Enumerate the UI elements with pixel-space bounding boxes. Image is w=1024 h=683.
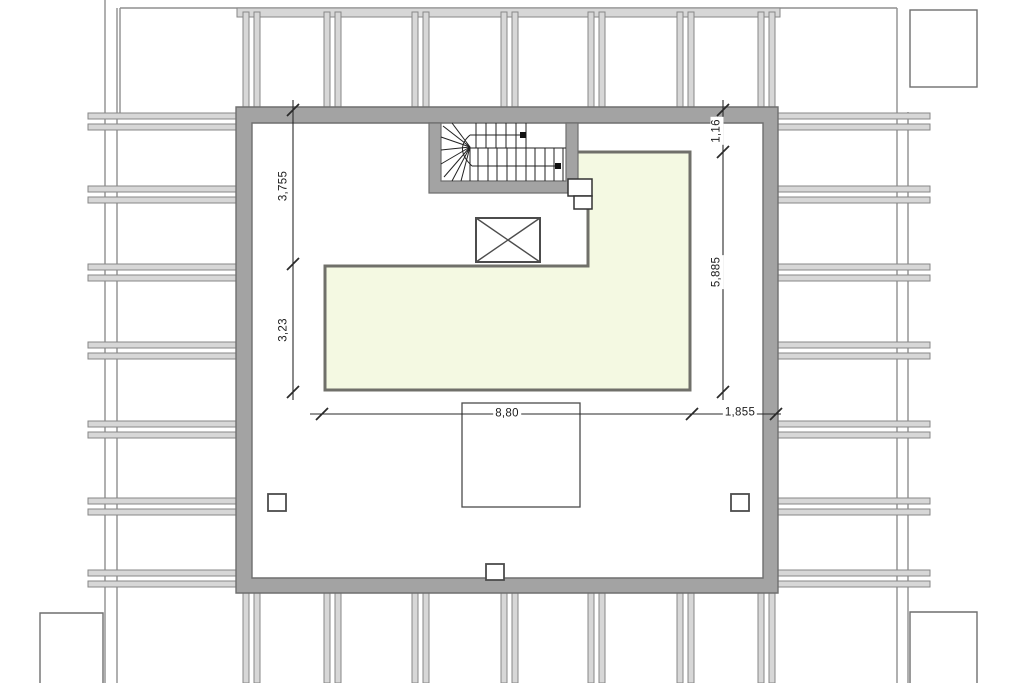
beam-bar — [88, 421, 236, 427]
beam-bar — [778, 124, 930, 130]
column-marker-left — [268, 494, 286, 511]
beam-bar — [243, 593, 249, 683]
beam-bar — [778, 342, 930, 348]
beam-bar — [778, 498, 930, 504]
beam-bar — [501, 12, 507, 107]
beam-bar — [335, 593, 341, 683]
beam-bar — [758, 593, 764, 683]
beam-bar — [599, 593, 605, 683]
beam-bar — [88, 275, 236, 281]
beam-bar — [778, 186, 930, 192]
beam-bar — [778, 275, 930, 281]
stair-walkline-dot-upper — [520, 132, 526, 138]
column-marker-bottom — [486, 564, 504, 580]
beam-bar — [778, 509, 930, 515]
beam-grid-left — [88, 113, 236, 587]
beam-bar — [254, 593, 260, 683]
stair-walkline-dot-lower — [555, 163, 561, 169]
beam-bar — [88, 581, 236, 587]
corner-rect-top-right — [910, 10, 977, 87]
dim-label-right-upper: 1,16 — [711, 117, 724, 145]
floor-plan-drawing — [0, 0, 1024, 683]
beam-bar — [588, 593, 594, 683]
beam-grid-right — [778, 113, 930, 587]
beam-bar — [335, 12, 341, 107]
corner-rect-bottom-left — [40, 613, 103, 683]
beam-bar — [778, 113, 930, 119]
dim-label-left-lower: 3,23 — [278, 316, 291, 344]
beam-bar — [423, 12, 429, 107]
beam-bar — [324, 593, 330, 683]
beam-bar — [88, 498, 236, 504]
beam-bar — [778, 432, 930, 438]
beam-bar — [778, 570, 930, 576]
beam-bar — [677, 12, 683, 107]
beam-bar — [758, 12, 764, 107]
beam-bar — [688, 12, 694, 107]
beam-bar — [324, 12, 330, 107]
dim-label-bottom-right: 1,855 — [723, 407, 757, 420]
dim-label-left-upper: 3,755 — [278, 169, 291, 203]
beam-bar — [412, 12, 418, 107]
corner-rect-bottom-right — [910, 612, 977, 683]
beam-bar — [778, 264, 930, 270]
beam-grid-bottom — [243, 593, 775, 683]
beam-bar — [243, 12, 249, 107]
dim-label-bottom-main: 8,80 — [493, 408, 521, 421]
beam-bar — [88, 509, 236, 515]
beam-bar — [423, 593, 429, 683]
top-edge-beam — [237, 8, 780, 17]
floor-plan-canvas: 3,755 3,23 1,16 5,885 8,80 1,855 — [0, 0, 1024, 683]
beam-bar — [677, 593, 683, 683]
beam-bar — [778, 421, 930, 427]
beam-bar — [88, 353, 236, 359]
beam-grid-top — [243, 12, 775, 107]
beam-bar — [688, 593, 694, 683]
beam-bar — [501, 593, 507, 683]
beam-bar — [88, 197, 236, 203]
beam-bar — [599, 12, 605, 107]
column-marker-right — [731, 494, 749, 511]
beam-bar — [88, 342, 236, 348]
beam-bar — [412, 593, 418, 683]
beam-bar — [88, 124, 236, 130]
beam-bar — [778, 197, 930, 203]
beam-bar — [588, 12, 594, 107]
beam-bar — [769, 12, 775, 107]
beam-bar — [512, 593, 518, 683]
beam-bar — [88, 570, 236, 576]
beam-bar — [88, 186, 236, 192]
beam-bar — [778, 353, 930, 359]
beam-bar — [769, 593, 775, 683]
beam-bar — [778, 581, 930, 587]
beam-bar — [88, 264, 236, 270]
beam-bar — [254, 12, 260, 107]
beam-bar — [88, 432, 236, 438]
beam-bar — [88, 113, 236, 119]
crossed-shaft-opening — [476, 218, 540, 262]
beam-bar — [512, 12, 518, 107]
dim-label-right-lower: 5,885 — [711, 255, 724, 289]
